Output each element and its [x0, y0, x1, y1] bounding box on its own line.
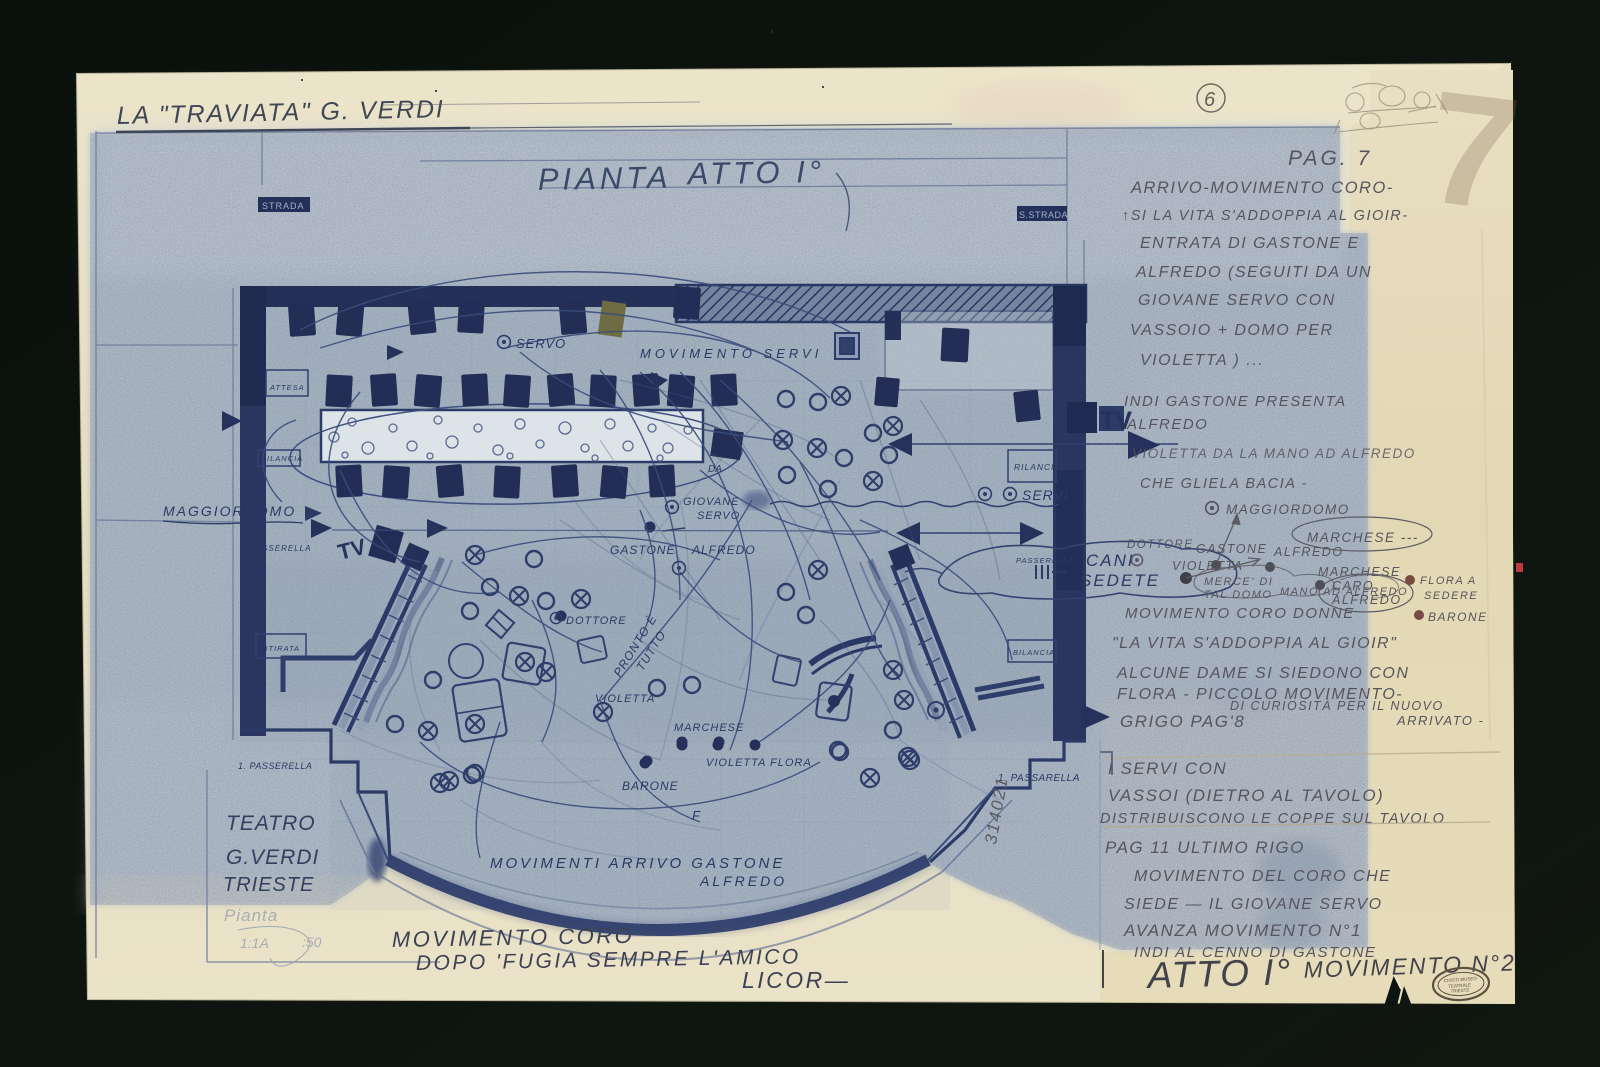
svg-text:SERVI: SERVI: [1022, 487, 1069, 503]
svg-text:MARCHESE: MARCHESE: [674, 722, 744, 734]
svg-text:MAGGIORDOMO: MAGGIORDOMO: [163, 503, 296, 519]
svg-text:1. PASSERELLA: 1. PASSERELLA: [238, 761, 312, 771]
svg-text:CANI: CANI: [1086, 551, 1135, 570]
svg-text:6: 6: [1204, 89, 1216, 111]
svg-text:SERVO: SERVO: [516, 336, 566, 351]
svg-text:PAG 11 ULTIMO RIGO: PAG 11 ULTIMO RIGO: [1105, 838, 1305, 857]
svg-text:↑SI LA VITA S'ADDOPPIA AL GIOI: ↑SI LA VITA S'ADDOPPIA AL GIOIR-: [1122, 208, 1409, 224]
svg-text:PIANTA: PIANTA: [538, 160, 672, 197]
svg-text:VASSOI (DIETRO AL TAVOLO): VASSOI (DIETRO AL TAVOLO): [1108, 786, 1384, 805]
svg-text:G.VERDI: G.VERDI: [226, 846, 319, 869]
svg-text:GIOVANE SERVO CON: GIOVANE SERVO CON: [1138, 292, 1336, 309]
svg-text:MARCHESE ---: MARCHESE ---: [1307, 530, 1419, 545]
svg-text:MARCHESE: MARCHESE: [1318, 565, 1401, 579]
svg-text:"LA VITA S'ADDOPPIA AL GIOIR": "LA VITA S'ADDOPPIA AL GIOIR": [1112, 635, 1397, 652]
svg-text:GIOVANE: GIOVANE: [683, 496, 740, 508]
svg-text:ALFREDO: ALFREDO: [1126, 416, 1208, 433]
svg-text:GASTONE: GASTONE: [1196, 542, 1267, 556]
svg-text:MOVIMENTO CORO: MOVIMENTO CORO: [392, 923, 635, 952]
svg-text:S.STRADA: S.STRADA: [1019, 210, 1068, 220]
svg-text::50: :50: [302, 934, 322, 950]
svg-text:GASTONE: GASTONE: [610, 543, 675, 557]
svg-text:FLORA A: FLORA A: [1420, 575, 1477, 587]
svg-text:I SERVI CON: I SERVI CON: [1108, 759, 1227, 778]
svg-text:CHE GLIELA BACIA -: CHE GLIELA BACIA -: [1140, 476, 1308, 492]
svg-text:SEDERE: SEDERE: [1424, 590, 1478, 602]
svg-text:ARRIVO-MOVIMENTO CORO-: ARRIVO-MOVIMENTO CORO-: [1130, 179, 1394, 197]
svg-text:TRIESTE: TRIESTE: [223, 874, 314, 896]
svg-text:Pianta: Pianta: [224, 906, 278, 925]
svg-text:AVANZA MOVIMENTO N°1: AVANZA MOVIMENTO N°1: [1123, 921, 1362, 940]
svg-text:MOVIMENTO DEL CORO CHE: MOVIMENTO DEL CORO CHE: [1134, 868, 1391, 885]
svg-text:BARONE: BARONE: [622, 779, 679, 793]
svg-text:STRADA: STRADA: [262, 201, 305, 211]
svg-text:ALFREDO: ALFREDO: [691, 543, 756, 557]
svg-text:SERVO: SERVO: [697, 510, 740, 522]
svg-text:ALFREDO: ALFREDO: [1273, 545, 1344, 559]
svg-text:VIOLETTA: VIOLETTA: [595, 693, 655, 705]
svg-text:MOVIMENTI ARRIVO GASTONE: MOVIMENTI ARRIVO GASTONE: [490, 855, 785, 872]
svg-text:MOVIMENTO CORO DONNE: MOVIMENTO CORO DONNE: [1125, 605, 1355, 622]
svg-text:TEATRO: TEATRO: [226, 812, 316, 835]
svg-text:PASSERELLA: PASSERELLA: [1016, 556, 1074, 565]
svg-text:ALFREDO: ALFREDO: [699, 873, 787, 889]
svg-text:MAGGIORDOMO: MAGGIORDOMO: [1226, 502, 1350, 517]
svg-text:INDI GASTONE PRESENTA: INDI GASTONE PRESENTA: [1124, 393, 1347, 410]
svg-text:ENTRATA DI GASTONE E: ENTRATA DI GASTONE E: [1140, 235, 1360, 252]
svg-text:ALFREDO (SEGUITI DA UN: ALFREDO (SEGUITI DA UN: [1135, 264, 1372, 281]
svg-text:SEDETE: SEDETE: [1080, 571, 1160, 590]
svg-text:VIOLETTA ) ...: VIOLETTA ) ...: [1140, 352, 1264, 369]
svg-text:ARRIVATO -: ARRIVATO -: [1396, 713, 1484, 728]
svg-text:SIEDE — IL GIOVANE SERVO: SIEDE — IL GIOVANE SERVO: [1124, 896, 1383, 913]
svg-text:VASSOIO + DOMO PER: VASSOIO + DOMO PER: [1130, 322, 1334, 339]
svg-text:RITIRATA: RITIRATA: [259, 644, 300, 653]
svg-text:ATTO I°: ATTO I°: [1145, 951, 1293, 996]
svg-text:MOVIMENTO SERVI: MOVIMENTO SERVI: [640, 346, 822, 361]
svg-text:BILANCIA: BILANCIA: [1013, 648, 1055, 657]
svg-text:DI CURIOSITÀ PER IL NUOVO: DI CURIOSITÀ PER IL NUOVO: [1230, 698, 1444, 713]
svg-text:LICOR—: LICOR—: [742, 967, 850, 993]
svg-text:ATTESA: ATTESA: [269, 383, 305, 392]
svg-text:VIOLETTA FLORA: VIOLETTA FLORA: [706, 757, 812, 769]
svg-text:DOTTORE: DOTTORE: [566, 615, 627, 627]
svg-text:MERCE' DI: MERCE' DI: [1204, 576, 1273, 588]
svg-text:PAG. 7: PAG. 7: [1288, 147, 1372, 170]
svg-text:BILANCIA: BILANCIA: [261, 454, 303, 463]
svg-text:PASSERELLA: PASSERELLA: [250, 544, 311, 553]
svg-text:BARONE: BARONE: [1428, 610, 1488, 624]
svg-text:TV: TV: [1100, 407, 1132, 435]
svg-text:F: F: [692, 808, 701, 823]
svg-text:DOTTORE: DOTTORE: [1127, 539, 1194, 551]
svg-text:RILANCIA: RILANCIA: [1014, 462, 1061, 472]
svg-text:VIOLETTA DA LA MANO AD ALFREDO: VIOLETTA DA LA MANO AD ALFREDO: [1132, 446, 1416, 461]
svg-text:GRIGO PAG'8: GRIGO PAG'8: [1120, 712, 1245, 731]
svg-text:ATTO I°: ATTO I°: [685, 154, 825, 191]
svg-text:1:1A: 1:1A: [240, 935, 269, 951]
svg-text:ALCUNE DAME SI SIEDONO CON: ALCUNE DAME SI SIEDONO CON: [1116, 665, 1409, 682]
